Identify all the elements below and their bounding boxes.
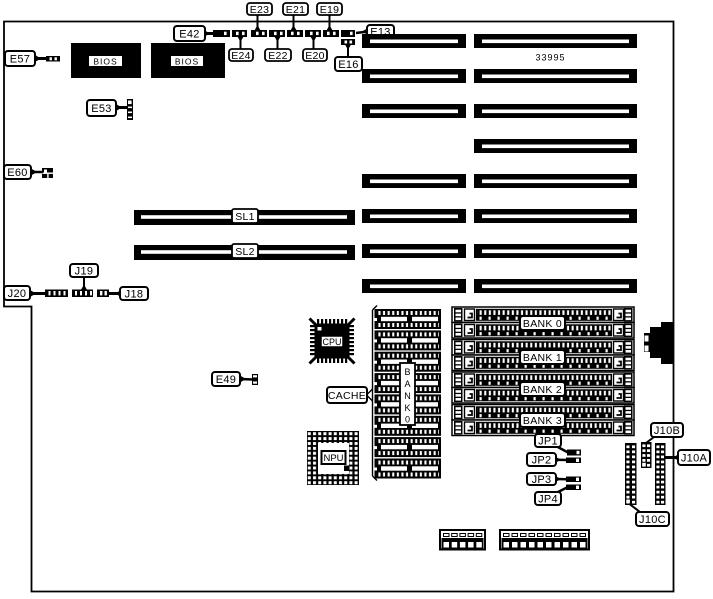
- svg-text:J10C: J10C: [639, 514, 666, 526]
- svg-text:E24: E24: [231, 50, 251, 62]
- svg-text:BANK 1: BANK 1: [523, 352, 562, 364]
- svg-text:N: N: [404, 391, 411, 401]
- svg-text:K: K: [404, 403, 410, 413]
- svg-text:E20: E20: [305, 50, 325, 62]
- svg-text:SL2: SL2: [235, 246, 255, 258]
- svg-text:JP2: JP2: [532, 454, 552, 466]
- svg-text:A: A: [404, 379, 410, 389]
- svg-text:E57: E57: [10, 53, 30, 65]
- svg-text:CACHE: CACHE: [328, 390, 366, 402]
- svg-text:E53: E53: [91, 103, 111, 115]
- svg-text:J10A: J10A: [681, 452, 708, 464]
- svg-text:JP1: JP1: [538, 435, 558, 447]
- svg-text:E21: E21: [286, 4, 306, 16]
- svg-text:BIOS: BIOS: [93, 57, 117, 67]
- svg-text:E16: E16: [338, 59, 358, 71]
- svg-text:BANK 0: BANK 0: [523, 318, 562, 330]
- svg-text:33995: 33995: [535, 53, 565, 63]
- svg-text:J18: J18: [125, 288, 144, 300]
- svg-text:JP3: JP3: [532, 474, 552, 486]
- svg-text:0: 0: [405, 415, 410, 425]
- svg-text:E60: E60: [7, 167, 27, 179]
- svg-text:BIOS: BIOS: [175, 57, 199, 67]
- svg-text:J19: J19: [75, 265, 94, 277]
- svg-text:J20: J20: [8, 288, 27, 300]
- svg-text:SL1: SL1: [235, 211, 255, 223]
- svg-text:JP4: JP4: [538, 493, 558, 505]
- svg-text:E19: E19: [320, 4, 340, 16]
- svg-text:BANK 3: BANK 3: [523, 415, 562, 427]
- svg-text:BANK 2: BANK 2: [523, 384, 562, 396]
- svg-text:J10B: J10B: [654, 425, 680, 437]
- svg-text:CPU: CPU: [322, 337, 341, 347]
- svg-text:E23: E23: [250, 4, 270, 16]
- svg-text:B: B: [404, 367, 410, 377]
- svg-text:E22: E22: [268, 50, 288, 62]
- svg-text:NPU: NPU: [323, 453, 343, 464]
- svg-text:E49: E49: [216, 374, 236, 386]
- svg-text:E42: E42: [179, 28, 199, 40]
